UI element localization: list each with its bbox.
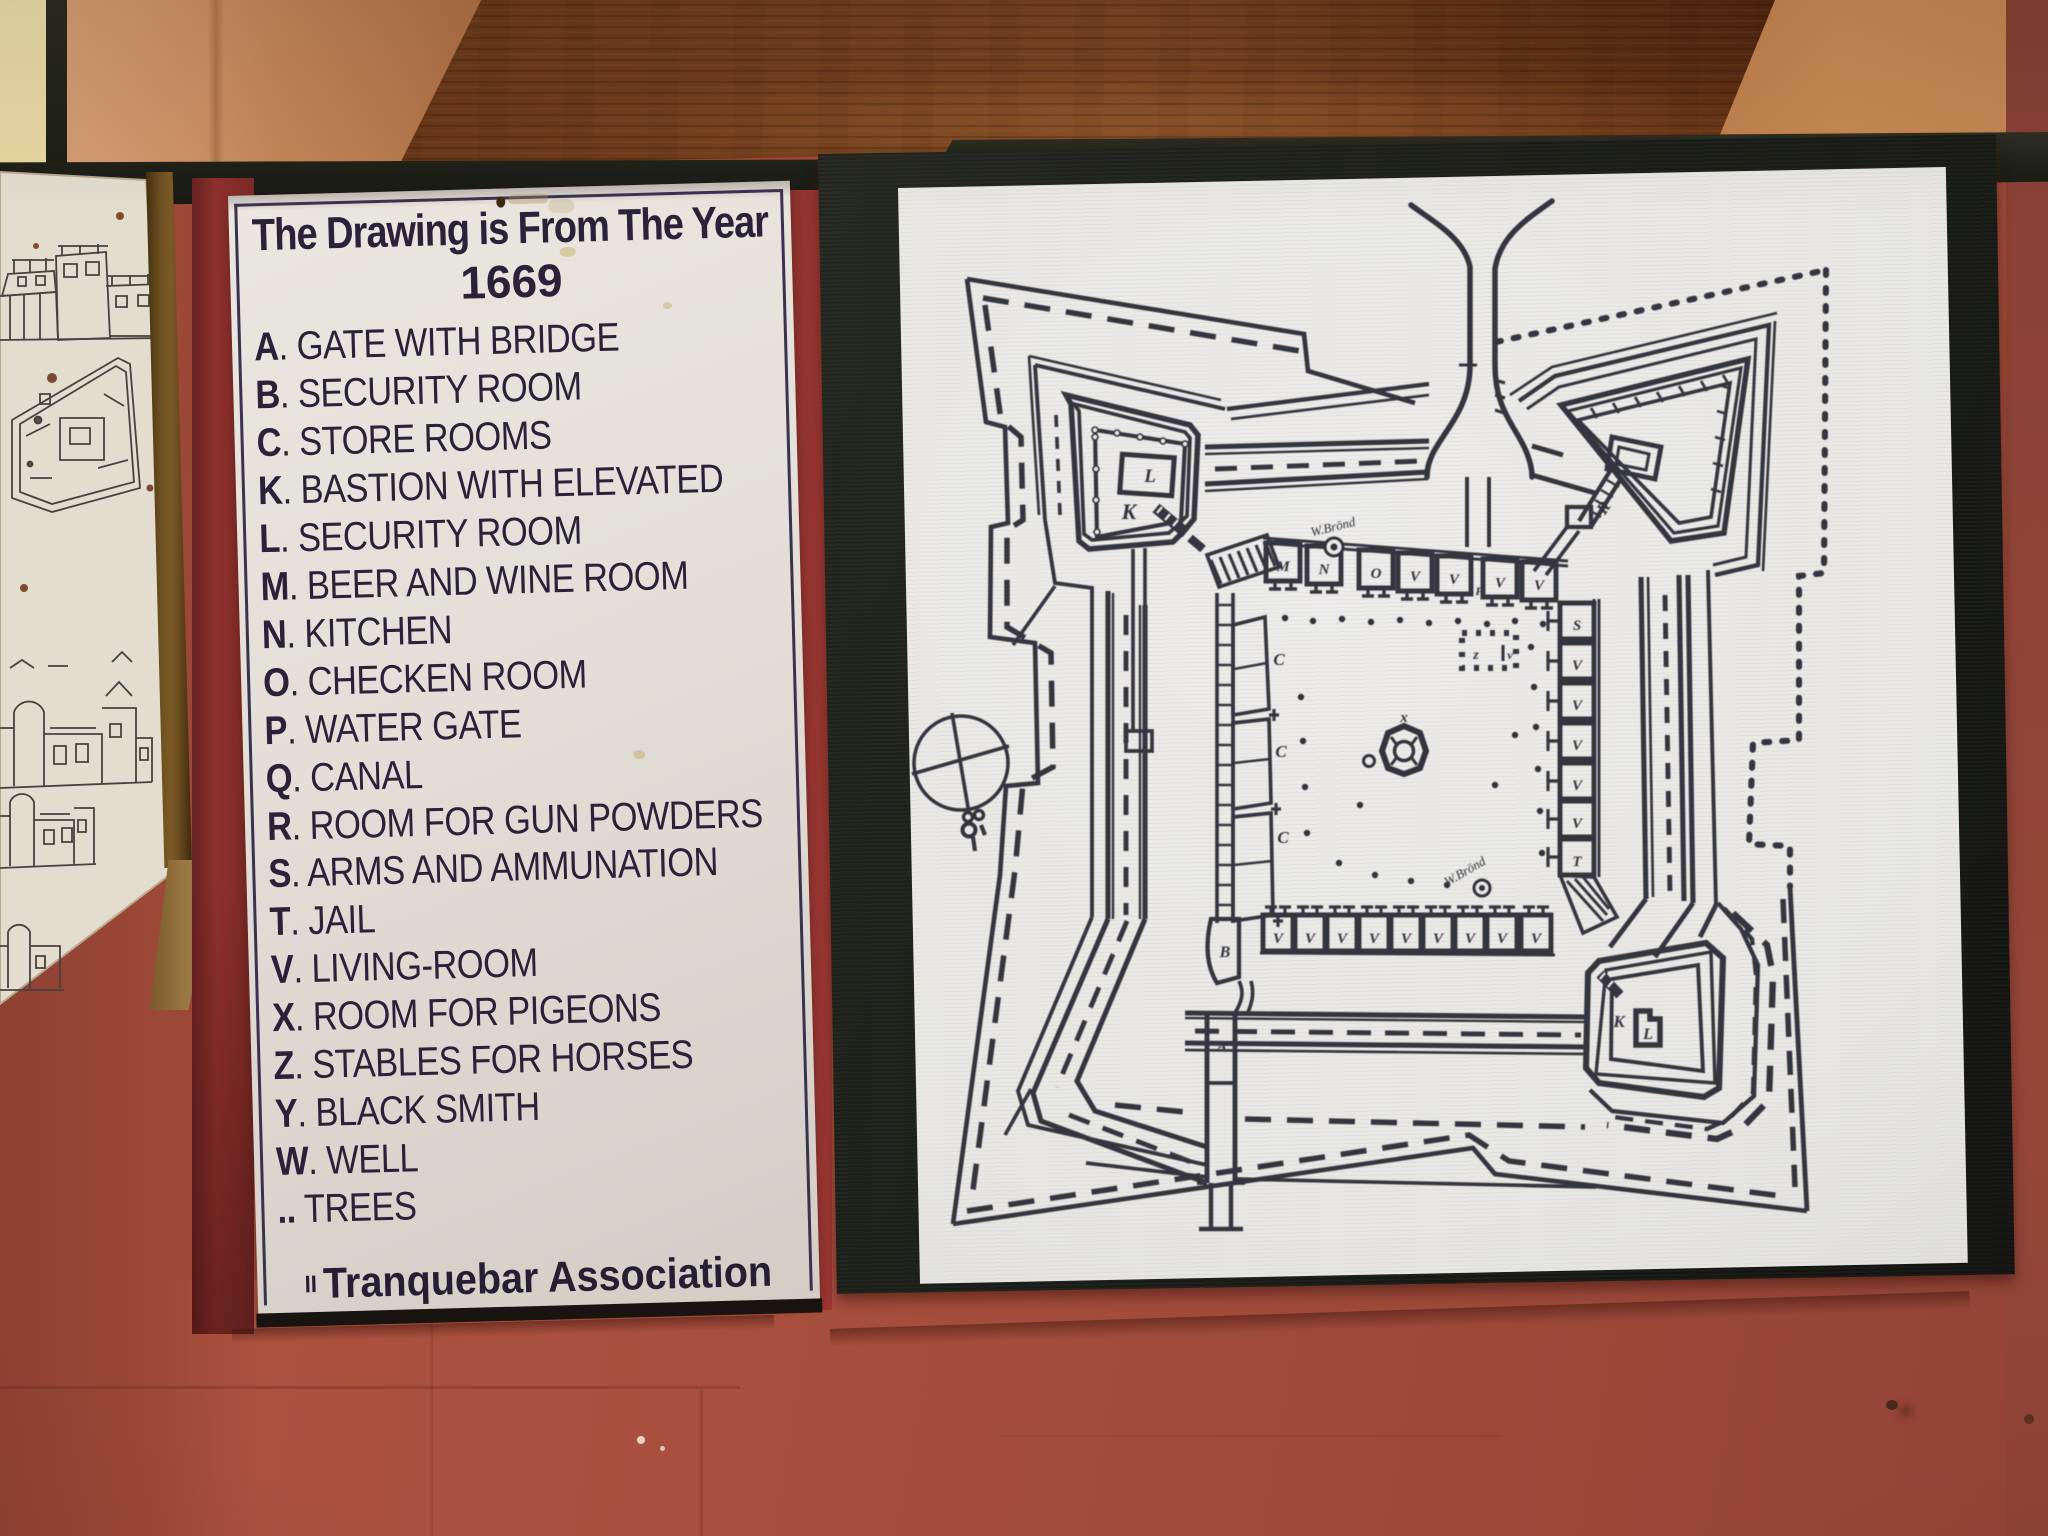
svg-text:K: K: [1121, 499, 1138, 524]
svg-text:V: V: [1572, 816, 1584, 832]
svg-text:C: C: [1275, 742, 1287, 761]
svg-text:V: V: [1369, 931, 1381, 947]
svg-text:V: V: [1401, 931, 1413, 947]
svg-text:V: V: [1433, 931, 1445, 947]
svg-text:T: T: [1572, 854, 1582, 870]
svg-text:V: V: [1305, 931, 1317, 947]
svg-text:O: O: [1371, 566, 1382, 582]
svg-text:A: A: [1216, 1039, 1227, 1055]
svg-text:P: P: [1475, 584, 1483, 598]
svg-text:B: B: [1219, 944, 1231, 961]
svg-text:L: L: [1642, 1026, 1653, 1043]
svg-text:V: V: [1273, 931, 1285, 947]
svg-text:V: V: [1572, 658, 1584, 674]
svg-text:V: V: [1497, 931, 1509, 947]
svg-text:v: v: [1507, 648, 1513, 662]
svg-text:C: C: [1273, 650, 1285, 669]
svg-text:V: V: [1572, 738, 1584, 754]
svg-text:V: V: [1534, 578, 1546, 594]
svg-text:V: V: [1465, 931, 1477, 947]
svg-text:W.Brönd: W.Brönd: [1309, 514, 1357, 540]
svg-text:V: V: [1531, 931, 1543, 947]
svg-text:V: V: [1337, 931, 1349, 947]
svg-text:V: V: [1495, 575, 1507, 591]
svg-text:S: S: [1573, 618, 1581, 634]
svg-text:N: N: [1318, 562, 1331, 578]
svg-text:x: x: [1399, 710, 1408, 726]
svg-text:L: L: [1143, 466, 1156, 487]
svg-text:V: V: [1572, 778, 1584, 794]
svg-text:V: V: [1410, 569, 1422, 585]
svg-text:V: V: [1572, 698, 1584, 714]
svg-text:K: K: [1612, 1012, 1626, 1031]
svg-text:z: z: [1472, 648, 1479, 663]
svg-text:V: V: [1449, 572, 1461, 588]
svg-text:C: C: [1277, 828, 1289, 847]
